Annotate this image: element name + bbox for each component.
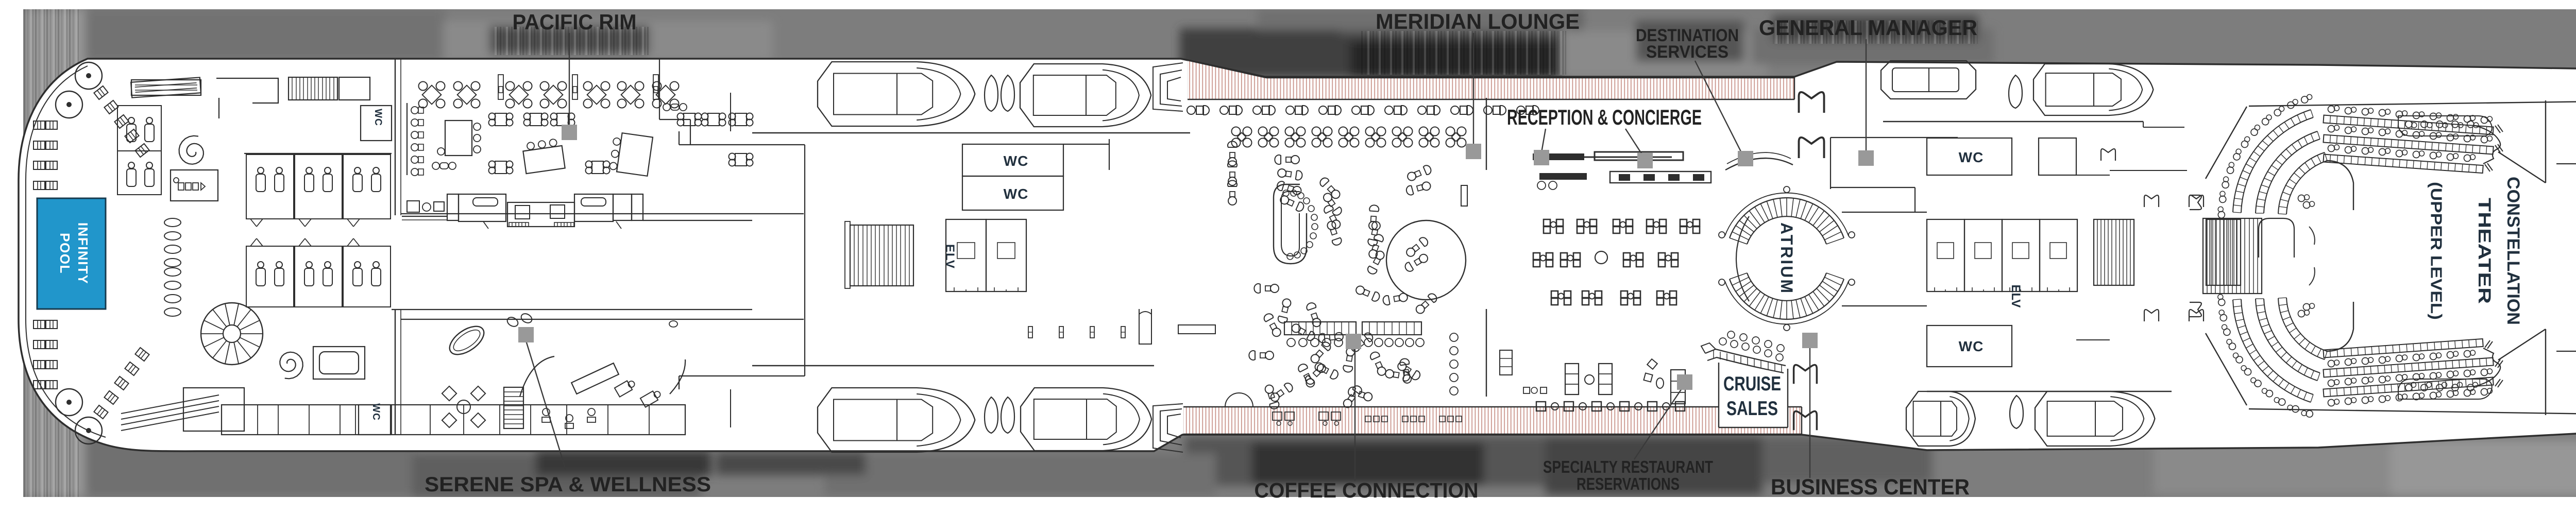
svg-text:WC: WC bbox=[1004, 153, 1029, 169]
svg-text:WC: WC bbox=[1959, 149, 1984, 165]
svg-text:INFINITY: INFINITY bbox=[75, 222, 91, 284]
svg-text:SALES: SALES bbox=[1726, 398, 1778, 420]
svg-text:THEATER: THEATER bbox=[2475, 198, 2494, 304]
svg-text:ELV: ELV bbox=[2009, 285, 2023, 308]
svg-text:COFFEE CONNECTION: COFFEE CONNECTION bbox=[1255, 478, 1479, 502]
svg-text:WC: WC bbox=[370, 403, 381, 421]
svg-text:WC: WC bbox=[372, 109, 383, 126]
svg-text:SERENE SPA & WELLNESS: SERENE SPA & WELLNESS bbox=[425, 473, 711, 496]
svg-text:GENERAL MANAGER: GENERAL MANAGER bbox=[1759, 15, 1977, 40]
svg-text:(UPPER LEVEL): (UPPER LEVEL) bbox=[2428, 182, 2446, 320]
svg-text:BUSINESS CENTER: BUSINESS CENTER bbox=[1771, 475, 1970, 500]
svg-text:WC: WC bbox=[1004, 186, 1029, 202]
svg-text:POOL: POOL bbox=[57, 233, 73, 274]
svg-text:SPECIALTY RESTAURANT: SPECIALTY RESTAURANT bbox=[1543, 457, 1713, 476]
svg-text:MERIDIAN LOUNGE: MERIDIAN LOUNGE bbox=[1376, 9, 1580, 33]
svg-text:WC: WC bbox=[1959, 338, 1984, 354]
svg-text:CONSTELLATION: CONSTELLATION bbox=[2503, 177, 2523, 325]
svg-text:RECEPTION & CONCIERGE: RECEPTION & CONCIERGE bbox=[1507, 105, 1702, 129]
svg-text:RESERVATIONS: RESERVATIONS bbox=[1577, 474, 1680, 493]
svg-text:SERVICES: SERVICES bbox=[1646, 42, 1728, 62]
svg-text:PACIFIC RIM: PACIFIC RIM bbox=[513, 10, 637, 34]
svg-text:ELV: ELV bbox=[943, 244, 957, 269]
svg-text:ATRIUM: ATRIUM bbox=[1777, 222, 1796, 295]
svg-text:CRUISE: CRUISE bbox=[1723, 373, 1781, 395]
